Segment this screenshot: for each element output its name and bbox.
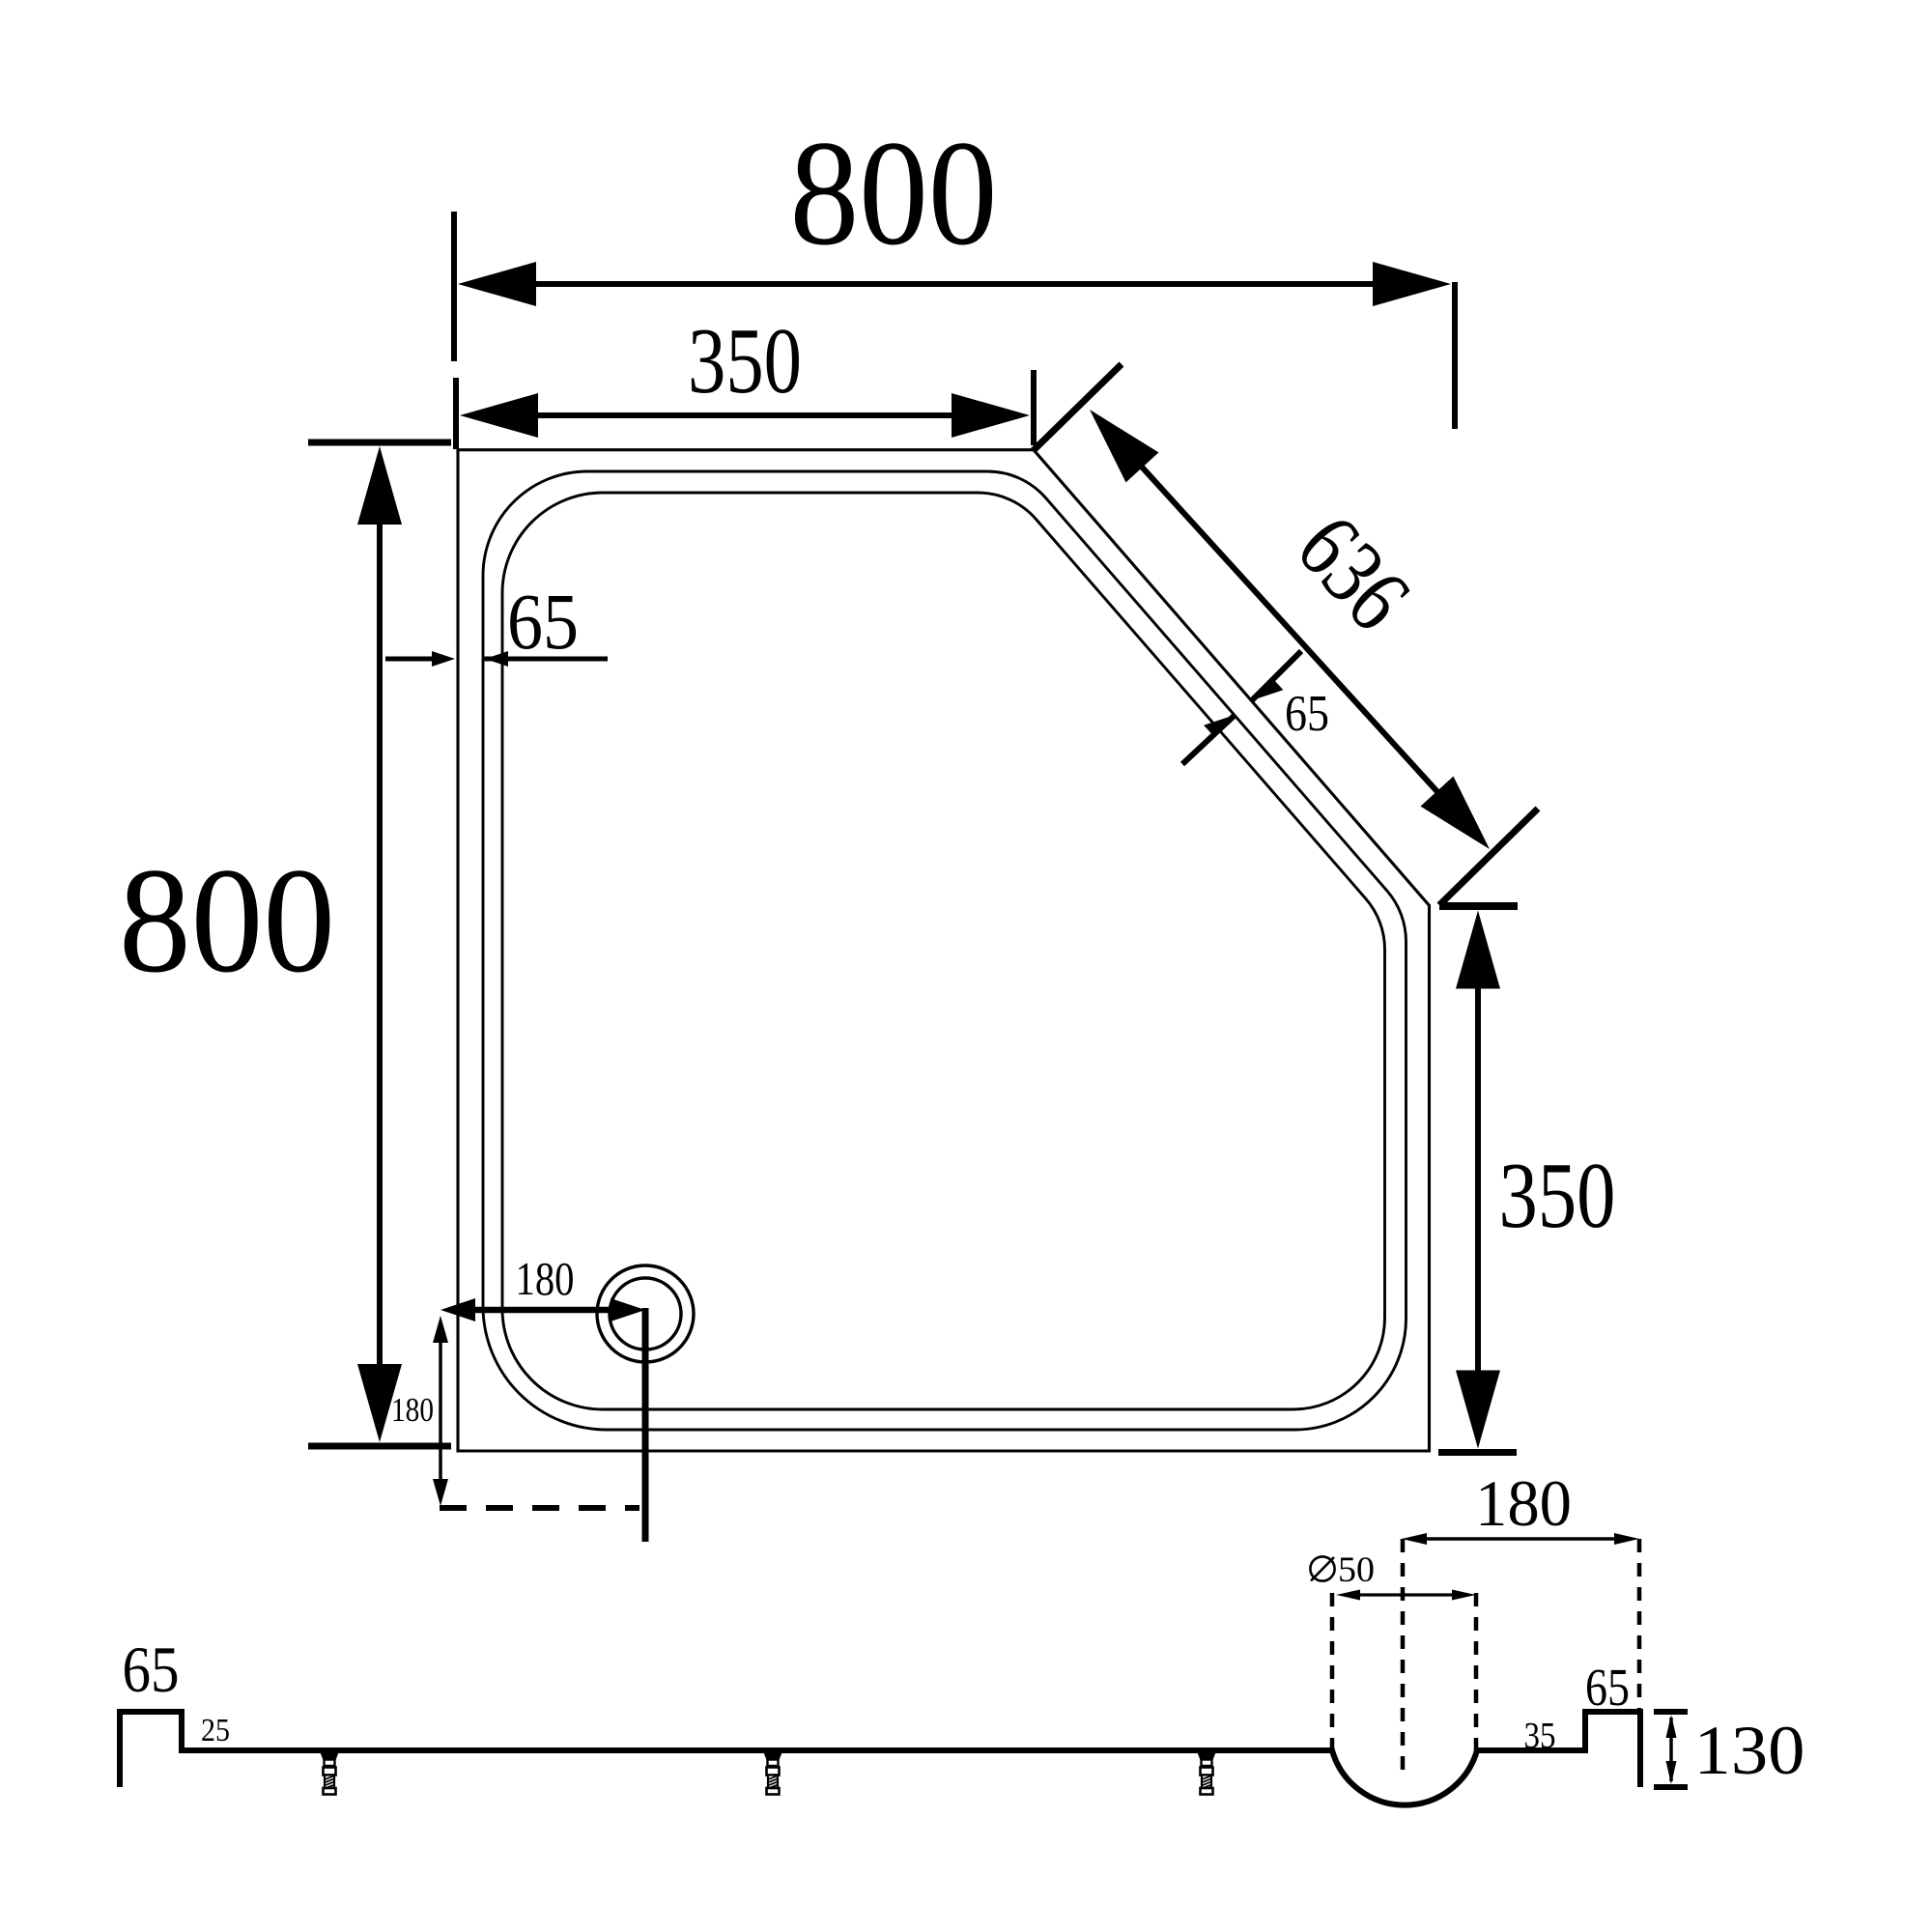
svg-text:130: 130: [1694, 1712, 1805, 1789]
svg-text:800: 800: [790, 109, 998, 276]
svg-text:180: 180: [391, 1391, 434, 1429]
svg-text:800: 800: [119, 837, 335, 1004]
svg-text:50: 50: [1338, 1550, 1375, 1590]
svg-text:35: 35: [1524, 1716, 1556, 1756]
svg-text:65: 65: [507, 577, 579, 666]
svg-text:350: 350: [688, 309, 802, 412]
svg-text:350: 350: [1499, 1144, 1616, 1247]
svg-text:180: 180: [516, 1252, 575, 1305]
svg-text:65: 65: [1285, 686, 1329, 742]
svg-text:25: 25: [201, 1713, 230, 1748]
svg-text:65: 65: [1585, 1658, 1630, 1717]
svg-text:65: 65: [123, 1633, 180, 1706]
svg-text:180: 180: [1475, 1466, 1572, 1540]
